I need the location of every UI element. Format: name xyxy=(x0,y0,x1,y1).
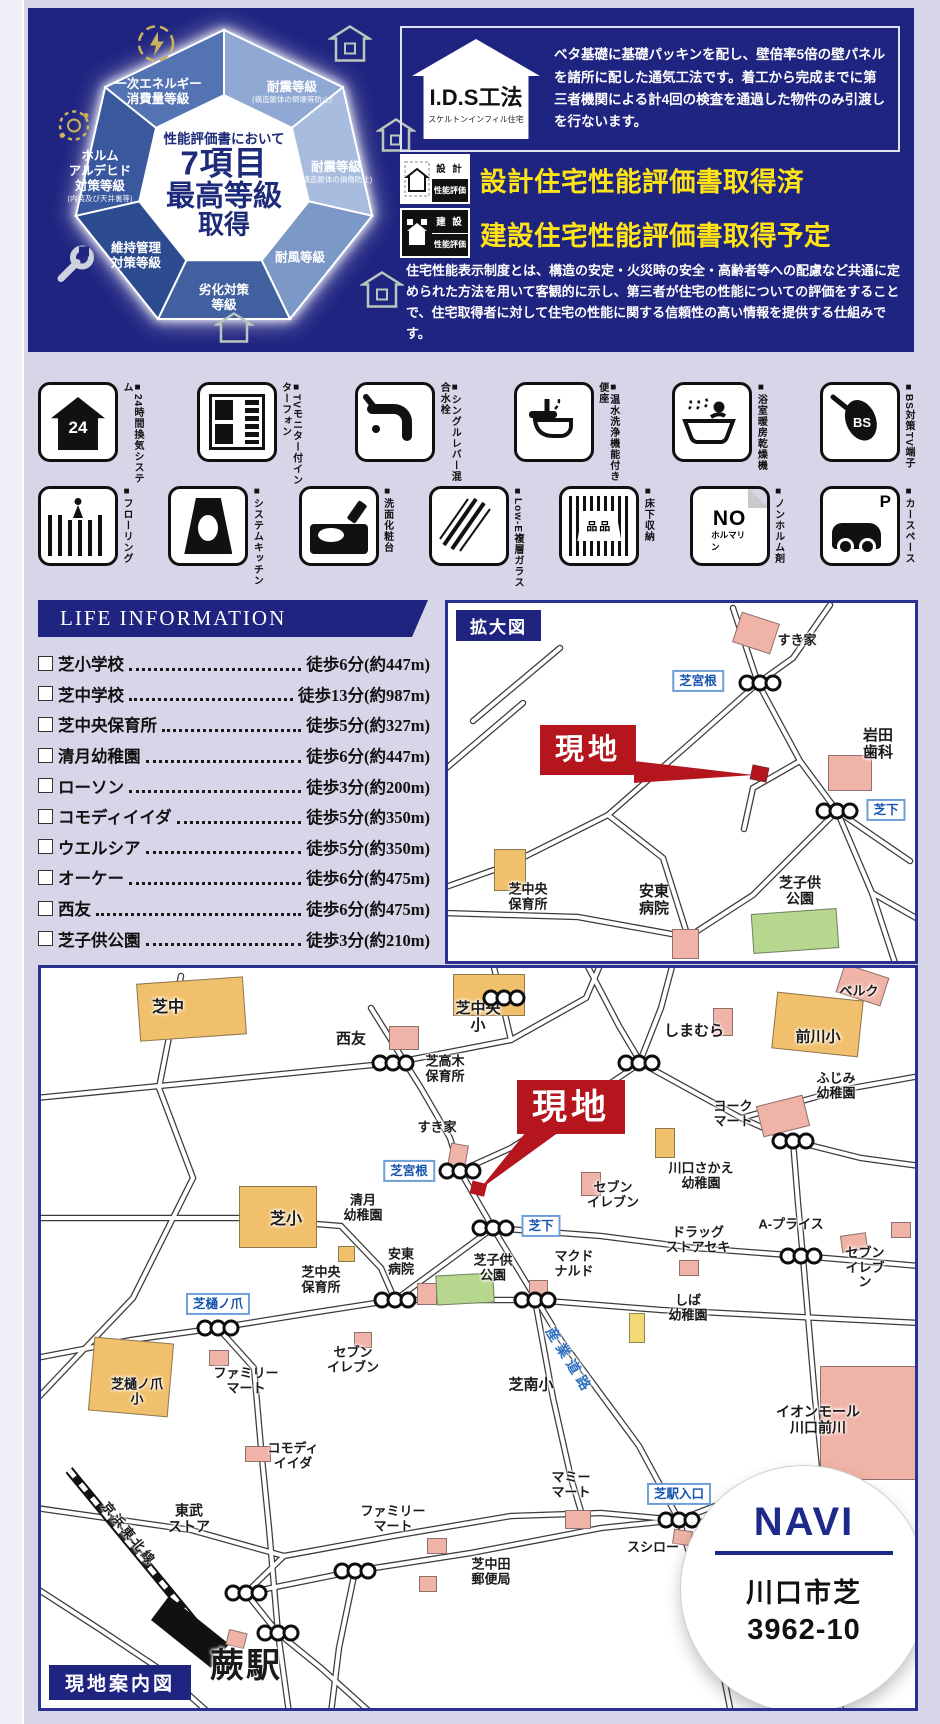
ids-subtitle: スケルトンインフィル住宅 xyxy=(428,114,524,125)
life-item: 芝子供公園徒歩3分(約210m) xyxy=(38,923,430,954)
map-place-label: 安東 病院 xyxy=(388,1247,414,1276)
building xyxy=(891,1222,911,1238)
map-place-label: 東武 ストア xyxy=(168,1503,210,1534)
wrench-icon xyxy=(51,243,97,294)
traffic-light-icon xyxy=(372,1055,415,1072)
facility-name: コモディイイダ xyxy=(58,804,172,828)
navi-title: NAVI xyxy=(754,1500,855,1545)
map-place-label: しまむら xyxy=(664,1024,724,1041)
life-item: オーケー徒歩6分(約475m) xyxy=(38,862,430,893)
map-place-label: A-プライス xyxy=(758,1218,823,1233)
building xyxy=(771,992,863,1058)
ids-house-icon: I.D.S工法 スケルトンインフィル住宅 xyxy=(412,39,540,139)
checkbox-icon xyxy=(38,870,53,885)
dotted-leader xyxy=(129,656,301,671)
flooring-icon xyxy=(38,486,118,566)
enlarged-map: 拡大図 現地 すき家岩田 歯科芝中央 保育所安東 病院芝子供 公園芝宮根芝下 xyxy=(445,600,918,964)
building xyxy=(419,1576,437,1592)
amenity-washlet: ■温水洗浄機能付き便座 xyxy=(514,382,619,486)
navi-address-line1: 川口市芝 xyxy=(746,1571,862,1610)
map-place-label: ヨーク マート xyxy=(713,1099,752,1128)
building xyxy=(750,764,770,782)
walking-distance: 徒歩13分(約987m) xyxy=(298,682,430,706)
construction-evaluation-icon: 建 設性能評価 xyxy=(400,208,470,258)
navi-badge: NAVI 川口市芝 3962-10 xyxy=(681,1466,918,1711)
traffic-light-icon xyxy=(374,1292,417,1309)
traffic-light-icon xyxy=(472,1220,515,1237)
map-place-label: ドラッグ ストアセキ xyxy=(666,1225,731,1254)
facility-name: ローソン xyxy=(58,774,124,798)
intersection-label: 芝下 xyxy=(866,799,905,821)
map-place-label: セブン イレブン xyxy=(840,1246,890,1290)
amenity-car-space: P ■カースペース xyxy=(820,486,914,590)
checkbox-icon xyxy=(38,901,53,916)
checkbox-icon xyxy=(38,656,53,671)
svg-text:BS: BS xyxy=(853,415,871,430)
life-information-header: LIFE INFORMATION xyxy=(38,600,428,637)
facility-name: 清月幼稚園 xyxy=(58,743,141,767)
map-place-label: 芝中 xyxy=(152,999,184,1017)
segment-rekka: 劣化対策 等級 xyxy=(199,283,249,313)
ids-method-box: I.D.S工法 スケルトンインフィル住宅 ベタ基礎に基礎パッキンを配し、壁倍率5… xyxy=(400,26,900,152)
dotted-leader xyxy=(146,931,302,946)
construction-evaluation-row: 建 設性能評価 建設住宅性能評価書取得予定 xyxy=(400,208,831,258)
energy-icon xyxy=(134,22,178,71)
map-place-label: 芝樋ノ爪 小 xyxy=(111,1377,163,1406)
map-place-label: すき家 xyxy=(777,634,816,649)
map-place-label: 安東 病院 xyxy=(639,884,669,918)
amenity-row-2: ■フローリング ■システムキッチン ■洗面化粧台 ■Low-E複層ガラス 品品 … xyxy=(38,486,914,590)
map-place-label: しば 幼稚園 xyxy=(668,1293,707,1322)
performance-panel: 耐震等級(構造躯体の倒壊等防止) 耐震等級(構造躯体の損傷防止) 耐風等級 劣化… xyxy=(28,8,914,352)
walking-distance: 徒歩5分(約327m) xyxy=(306,712,430,736)
segment-taifu: 耐風等級 xyxy=(275,251,325,266)
traffic-light-icon xyxy=(514,1292,557,1309)
map-place-label: 芝高木 保育所 xyxy=(425,1054,464,1083)
map-place-label: 芝子供 公園 xyxy=(779,875,821,906)
ids-description: ベタ基礎に基礎パッキンを配し、壁倍率5倍の壁パネルを諸所に配した通気工法です。着… xyxy=(540,38,898,139)
performance-heptagon-diagram: 耐震等級(構造躯体の倒壊等防止) 耐震等級(構造躯体の損傷防止) 耐風等級 劣化… xyxy=(34,10,414,346)
map-place-label: 芝中田 郵便局 xyxy=(471,1557,510,1586)
enlarged-map-title: 拡大図 xyxy=(456,610,541,641)
building xyxy=(672,929,699,959)
heptagon-center-text: 性能評価書において 7項目 最高等級 取得 xyxy=(163,133,284,240)
traffic-light-icon xyxy=(739,675,782,692)
washlet-icon xyxy=(514,382,594,462)
traffic-light-icon xyxy=(439,1163,482,1180)
amenity-system-kitchen: ■システムキッチン xyxy=(168,486,262,590)
walking-distance: 徒歩5分(約350m) xyxy=(306,835,430,859)
intersection-label: 芝駅入口 xyxy=(647,1483,711,1505)
amenity-bs-antenna: BS ■BS対策TV端子 xyxy=(820,382,914,486)
intersection-label: 芝樋ノ爪 xyxy=(186,1293,250,1315)
map-place-label: ベルク xyxy=(839,985,878,1000)
map-place-label: 西友 xyxy=(336,1032,366,1049)
map-place-label: コモディ イイダ xyxy=(267,1441,318,1470)
map-place-label: ファミリー マート xyxy=(360,1504,425,1533)
life-item: ローソン徒歩3分(約200m) xyxy=(38,770,430,801)
dotted-leader xyxy=(146,839,302,854)
life-item: 清月幼稚園徒歩6分(約447m) xyxy=(38,740,430,771)
bs-antenna-icon: BS xyxy=(820,382,900,462)
building xyxy=(427,1538,447,1554)
map-place-label: ファミリー マート xyxy=(213,1366,278,1395)
life-item: 西友徒歩6分(約475m) xyxy=(38,893,430,924)
map-place-label: 芝中央 保育所 xyxy=(301,1265,340,1294)
map-place-label: 岩田 歯科 xyxy=(863,728,893,762)
area-map: 現地 NAVI 川口市芝 3962-10 現地案内図 芝中西友芝中央 小しまむら… xyxy=(38,965,918,1711)
dotted-leader xyxy=(129,686,293,701)
map-place-label: 芝南小 xyxy=(508,1378,553,1395)
traffic-light-icon xyxy=(772,1133,815,1150)
facility-name: オーケー xyxy=(58,865,124,889)
tv-intercom-icon xyxy=(197,382,277,462)
segment-taishin2: 耐震等級(構造躯体の損傷防止) xyxy=(300,160,373,184)
traffic-light-icon xyxy=(618,1055,661,1072)
segment-iji: 維持管理 対策等級 xyxy=(111,241,161,271)
amenity-vanity: ■洗面化粧台 xyxy=(299,486,393,590)
dotted-leader xyxy=(177,809,302,824)
building xyxy=(389,1026,419,1050)
allergen-icon xyxy=(51,103,97,154)
building xyxy=(338,1246,355,1262)
traffic-light-icon xyxy=(197,1320,240,1337)
facility-name: 芝中学校 xyxy=(58,682,124,706)
dotted-leader xyxy=(129,778,301,793)
checkbox-icon xyxy=(38,748,53,763)
checkbox-icon xyxy=(38,839,53,854)
flyer-page: 耐震等級(構造躯体の倒壊等防止) 耐震等級(構造躯体の損傷防止) 耐風等級 劣化… xyxy=(0,0,940,1724)
checkbox-icon xyxy=(38,686,53,701)
amenity-underfloor-storage: 品品 ■床下収納 xyxy=(559,486,653,590)
car-space-icon: P xyxy=(820,486,900,566)
map-place-label: イオンモール 川口前川 xyxy=(776,1404,860,1435)
ids-title: I.D.S工法 xyxy=(430,80,523,112)
building xyxy=(679,1260,699,1276)
life-item: 芝小学校徒歩6分(約447m) xyxy=(38,648,430,679)
amenity-ventilation-24h: 24 ■24時間換気システム xyxy=(38,382,143,486)
building xyxy=(629,1313,645,1343)
facility-name: 芝中央保育所 xyxy=(58,712,157,736)
map-place-label: 蕨駅 xyxy=(210,1647,282,1685)
dotted-leader xyxy=(146,748,302,763)
map-place-label: マクド ナルド xyxy=(554,1249,593,1278)
map-place-label: セブン イレブン xyxy=(587,1180,639,1209)
amenity-tv-intercom: ■TVモニター付インターフォン xyxy=(197,382,302,486)
facility-name: 芝子供公園 xyxy=(58,927,141,951)
bath-dryer-icon xyxy=(672,382,752,462)
building xyxy=(417,1283,437,1305)
building xyxy=(209,1350,229,1366)
dotted-leader xyxy=(96,901,301,916)
amenity-bath-dryer: ■浴室暖房乾燥機 xyxy=(672,382,766,486)
underfloor-storage-icon: 品品 xyxy=(559,486,639,566)
walking-distance: 徒歩6分(約475m) xyxy=(306,865,430,889)
dotted-leader xyxy=(129,870,301,885)
amenity-single-lever-faucet: ■シングルレバー混合水栓 xyxy=(355,382,460,486)
intersection-label: 芝宮根 xyxy=(383,1160,435,1182)
map-place-label: 清月 幼稚園 xyxy=(343,1193,382,1222)
life-information-list: 芝小学校徒歩6分(約447m)芝中学校徒歩13分(約987m)芝中央保育所徒歩5… xyxy=(38,648,430,954)
segment-horumu: ホルム アルデヒド 対策等級(内装及び天井裏等) xyxy=(68,149,133,203)
traffic-light-icon xyxy=(257,1625,300,1642)
intersection-label: 芝宮根 xyxy=(672,670,724,692)
dotted-leader xyxy=(162,717,301,732)
building xyxy=(565,1510,591,1529)
vanity-icon xyxy=(299,486,379,566)
building xyxy=(751,908,840,954)
walking-distance: 徒歩6分(約447m) xyxy=(306,651,430,675)
house-wind-icon xyxy=(360,270,404,315)
facility-name: ウエルシア xyxy=(58,835,141,859)
map-caption: 現地案内図 xyxy=(49,1665,191,1700)
lowe-glass-icon xyxy=(429,486,509,566)
checkbox-icon xyxy=(38,717,53,732)
traffic-light-icon xyxy=(658,1512,701,1529)
system-kitchen-icon xyxy=(168,486,248,566)
segment-energy: 一次エネルギー 消費量等級 xyxy=(114,77,202,107)
design-evaluation-row: 設 計性能評価 設計住宅性能評価書取得済 xyxy=(400,154,804,204)
traffic-light-icon xyxy=(225,1585,268,1602)
building xyxy=(655,1128,675,1158)
life-item: コモディイイダ徒歩5分(約350m) xyxy=(38,801,430,832)
life-item: ウエルシア徒歩5分(約350m) xyxy=(38,832,430,863)
walking-distance: 徒歩6分(約447m) xyxy=(306,743,430,767)
checkbox-icon xyxy=(38,778,53,793)
navi-address-line2: 3962-10 xyxy=(747,1614,860,1647)
faucet-icon xyxy=(355,382,435,462)
checkbox-icon xyxy=(38,809,53,824)
map-place-label: 芝子供 公園 xyxy=(473,1253,512,1282)
traffic-light-icon xyxy=(334,1563,377,1580)
map-place-label: セブン イレブン xyxy=(327,1345,379,1374)
map-place-label: 川口さかえ 幼稚園 xyxy=(668,1161,733,1190)
map-place-label: スシロー xyxy=(627,1541,679,1556)
facility-name: 芝小学校 xyxy=(58,651,124,675)
house-quake1-icon xyxy=(328,24,372,69)
design-evaluation-icon: 設 計性能評価 xyxy=(400,154,470,204)
segment-taishin1: 耐震等級(構造躯体の倒壊等防止) xyxy=(252,80,332,104)
traffic-light-icon xyxy=(780,1248,823,1265)
walking-distance: 徒歩3分(約210m) xyxy=(306,927,430,951)
no-formalin-icon: NOホルマリン xyxy=(690,486,770,566)
traffic-light-icon xyxy=(816,803,859,820)
intersection-label: 芝下 xyxy=(521,1215,560,1237)
amenity-flooring: ■フローリング xyxy=(38,486,132,590)
site-marker-enlarged: 現地 xyxy=(540,725,636,775)
walking-distance: 徒歩6分(約475m) xyxy=(306,896,430,920)
map-place-label: 芝中央 保育所 xyxy=(508,882,547,911)
amenity-lowe-glass: ■Low-E複層ガラス xyxy=(429,486,523,590)
map-place-label: 前川小 xyxy=(795,1030,840,1047)
walking-distance: 徒歩3分(約200m) xyxy=(306,774,430,798)
facility-name: 西友 xyxy=(58,896,91,920)
site-marker-area: 現地 xyxy=(517,1080,625,1134)
map-place-label: 芝小 xyxy=(270,1211,302,1229)
house-durability-icon xyxy=(214,312,254,349)
map-place-label: マミー マート xyxy=(551,1470,590,1499)
life-item: 芝中央保育所徒歩5分(約327m) xyxy=(38,709,430,740)
traffic-light-icon xyxy=(483,990,526,1007)
life-item: 芝中学校徒歩13分(約987m) xyxy=(38,679,430,710)
map-place-label: ふじみ 幼稚園 xyxy=(816,1071,855,1100)
ventilation-24h-icon: 24 xyxy=(38,382,118,462)
map-place-label: すき家 xyxy=(417,1121,456,1136)
hyoka-description: 住宅性能表示制度とは、構造の安定・火災時の安全・高齢者等への配慮など共通に定めら… xyxy=(406,260,906,344)
design-evaluation-label: 設計住宅性能評価書取得済 xyxy=(480,160,804,199)
walking-distance: 徒歩5分(約350m) xyxy=(306,804,430,828)
navi-divider xyxy=(715,1551,893,1555)
amenity-row-1: 24 ■24時間換気システム ■TVモニター付インターフォン ■シングルレバー混… xyxy=(38,382,914,486)
checkbox-icon xyxy=(38,931,53,946)
construction-evaluation-label: 建設住宅性能評価書取得予定 xyxy=(480,214,831,253)
amenity-no-formalin: NOホルマリン ■ノンホルム剤 xyxy=(690,486,784,590)
